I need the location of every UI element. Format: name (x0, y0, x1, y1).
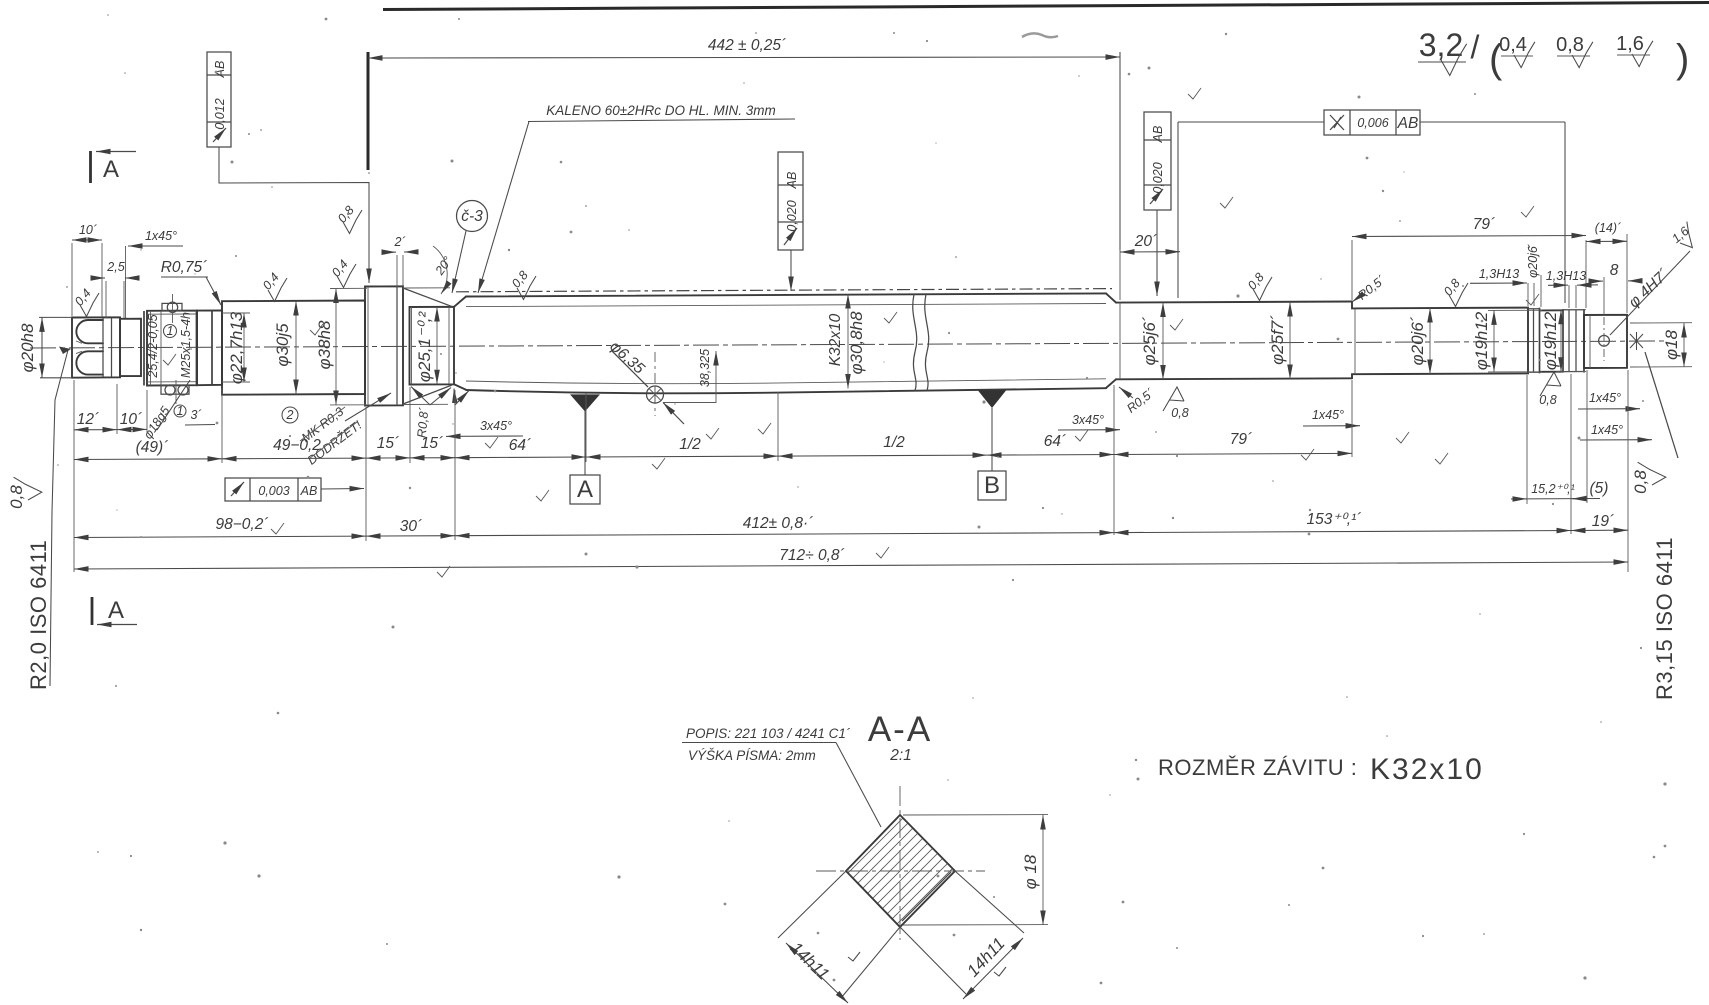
svg-text:79´: 79´ (1230, 431, 1252, 448)
svg-text:12´: 12´ (77, 411, 99, 428)
svg-text:φ22,7h13: φ22,7h13 (227, 311, 246, 384)
svg-text:15,2⁺⁰,¹: 15,2⁺⁰,¹ (1531, 482, 1575, 496)
svg-text:AB: AB (785, 172, 799, 190)
svg-text:φ38h8: φ38h8 (315, 320, 334, 369)
svg-text:R3,15 ISO 6411: R3,15 ISO 6411 (1652, 537, 1677, 700)
svg-text:2: 2 (286, 408, 294, 422)
svg-text:15´: 15´ (377, 435, 399, 452)
svg-text:3x45°: 3x45° (480, 419, 512, 433)
svg-text:φ20j6̌: φ20j6̌ (1526, 243, 1540, 278)
svg-text:AB: AB (300, 484, 318, 498)
svg-text:φ25f7´: φ25f7´ (1268, 315, 1287, 365)
svg-text:1: 1 (177, 404, 184, 418)
svg-text:/: / (1471, 29, 1480, 65)
svg-text:KALENO 60±2HRc DO HL. MIN.: KALENO 60±2HRc DO HL. MIN. 3mm (546, 103, 775, 118)
svg-text:(49)´: (49)´ (136, 439, 169, 456)
svg-text:1,6: 1,6 (1616, 33, 1644, 55)
svg-text:1/2: 1/2 (679, 436, 701, 453)
svg-text:A: A (108, 597, 124, 624)
svg-text:1x45°: 1x45° (1312, 408, 1344, 422)
svg-text:10´: 10´ (120, 411, 142, 428)
svg-text:K32x10: K32x10 (827, 313, 844, 366)
svg-text:R0,8´: R0,8´ (415, 407, 432, 439)
svg-text:49−0,2: 49−0,2 (273, 437, 321, 454)
svg-text:φ 18: φ 18 (1021, 854, 1040, 889)
svg-text:0,4: 0,4 (1499, 34, 1527, 56)
svg-text:38,325: 38,325 (698, 349, 712, 387)
svg-text:ROZMĚR ZÁVITU :: ROZMĚR ZÁVITU : (1158, 755, 1357, 780)
svg-text:φ20h8: φ20h8 (18, 323, 37, 372)
svg-text:A: A (103, 156, 119, 183)
svg-text:R2,0 ISO 6411: R2,0 ISO 6411 (26, 540, 51, 690)
svg-text:0,006: 0,006 (1357, 116, 1388, 130)
svg-text:0,012: 0,012 (213, 98, 227, 129)
svg-text:2,5: 2,5 (106, 260, 124, 274)
svg-text:2:1: 2:1 (889, 747, 912, 764)
svg-text:1,3H13: 1,3H13 (1546, 269, 1586, 283)
svg-text:0,8: 0,8 (7, 485, 26, 509)
svg-text:1: 1 (167, 324, 174, 338)
svg-text:AB: AB (1397, 115, 1419, 132)
svg-text:0,8: 0,8 (1631, 470, 1650, 494)
svg-text:0,003: 0,003 (258, 484, 289, 498)
svg-text:79´: 79´ (1473, 216, 1495, 233)
svg-text:č-3: č-3 (461, 208, 483, 225)
svg-text:0,020: 0,020 (785, 200, 799, 231)
svg-text:B: B (984, 472, 1000, 499)
svg-text:AB: AB (213, 61, 227, 79)
svg-text:64´: 64´ (509, 437, 531, 454)
svg-text:φ20j6´: φ20j6´ (1408, 316, 1427, 365)
svg-text:φ30j5: φ30j5 (273, 323, 292, 367)
svg-text:64´: 64´ (1044, 433, 1066, 450)
svg-text:K32x10: K32x10 (1370, 753, 1484, 786)
svg-text:(14)´: (14)´ (1595, 221, 1621, 235)
svg-text:φ18: φ18 (1662, 329, 1681, 360)
svg-text:A: A (577, 476, 593, 503)
svg-text:20´: 20´ (1134, 233, 1157, 250)
svg-text:VÝŠKA PÍSMA: 2mm: VÝŠKA PÍSMA: 2mm (688, 748, 816, 763)
svg-text:M25x1,5-4h: M25x1,5-4h (179, 312, 193, 378)
svg-text:φ30,8h8: φ30,8h8 (847, 311, 866, 375)
svg-text:442 ± 0,25´: 442 ± 0,25´ (708, 37, 786, 54)
svg-text:1x45°: 1x45° (1589, 391, 1621, 405)
svg-text:): ) (1676, 37, 1689, 81)
svg-text:30´: 30´ (400, 518, 422, 535)
svg-text:412± 0,8·´: 412± 0,8·´ (743, 515, 814, 532)
svg-text:98−0,2´: 98−0,2´ (215, 516, 268, 533)
svg-text:1x45°: 1x45° (1591, 423, 1623, 437)
svg-text:712÷ 0,8´: 712÷ 0,8´ (779, 547, 844, 564)
svg-text:15´: 15´ (421, 435, 443, 452)
svg-text:25,4/2-0,05: 25,4/2-0,05 (146, 314, 160, 378)
svg-text:3x45°: 3x45° (1072, 413, 1104, 427)
svg-text:R0,75´: R0,75´ (161, 259, 208, 276)
svg-text:AB: AB (1151, 126, 1165, 144)
svg-text:19´: 19´ (1592, 513, 1614, 530)
svg-text:3´: 3´ (190, 408, 201, 422)
svg-text:1/2: 1/2 (883, 434, 905, 451)
svg-text:A-A: A-A (868, 710, 932, 749)
svg-text:153⁺⁰,¹´: 153⁺⁰,¹´ (1307, 511, 1362, 528)
svg-text:10´: 10´ (79, 223, 97, 237)
svg-text:3,2: 3,2 (1419, 27, 1463, 63)
svg-text:0,8: 0,8 (1171, 406, 1188, 420)
svg-text:φ19h12: φ19h12 (1541, 311, 1560, 370)
svg-text:1x45°: 1x45° (145, 229, 177, 243)
svg-text:1,3H13: 1,3H13 (1479, 267, 1519, 281)
svg-text:0,8: 0,8 (1539, 393, 1556, 407)
svg-text:(5): (5) (1590, 480, 1609, 497)
svg-text:φ25,1⁻⁰,²: φ25,1⁻⁰,² (415, 310, 434, 382)
svg-text:8: 8 (1610, 262, 1619, 279)
svg-text:POPIS: 221 103 / 4241 C1´: POPIS: 221 103 / 4241 C1´ (686, 726, 851, 741)
svg-text:2´: 2´ (393, 235, 405, 249)
svg-text:φ25j6´: φ25j6´ (1140, 316, 1159, 365)
svg-text:0,8: 0,8 (1556, 34, 1584, 56)
